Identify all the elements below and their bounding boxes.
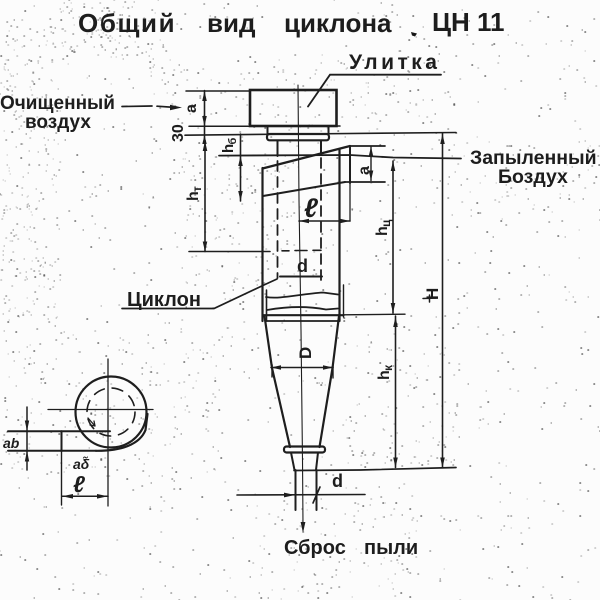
- svg-text:т: т: [190, 186, 204, 192]
- svg-text:a: a: [183, 104, 200, 113]
- svg-text:d: d: [297, 256, 308, 276]
- svg-text:Общий: Общий: [78, 8, 176, 38]
- svg-text:ℓ: ℓ: [73, 471, 85, 497]
- svg-text:Улитка: Улитка: [349, 51, 440, 74]
- svg-text:б: б: [227, 138, 239, 145]
- svg-text:вид: вид: [207, 8, 256, 38]
- svg-text:воздух: воздух: [25, 112, 91, 133]
- svg-text:аb: аb: [3, 435, 20, 451]
- svg-text:d: d: [332, 471, 343, 491]
- svg-text:Боздух: Боздух: [498, 166, 568, 188]
- svg-text:Очищенный: Очищенный: [0, 93, 115, 114]
- svg-text:ЦН 11: ЦН 11: [432, 7, 504, 37]
- svg-text:к: к: [381, 364, 395, 371]
- svg-text:H: H: [423, 288, 442, 300]
- svg-text:a: a: [356, 166, 373, 175]
- svg-text:Сброс: Сброс: [284, 537, 346, 559]
- svg-text:аδ̃: аδ̃: [73, 455, 90, 472]
- svg-text:30: 30: [170, 124, 187, 142]
- svg-text:пыли: пыли: [364, 537, 418, 559]
- svg-text:ℓ: ℓ: [304, 193, 319, 223]
- svg-text:ц: ц: [379, 219, 393, 227]
- svg-text:циклона: циклона: [284, 8, 392, 38]
- svg-text:D: D: [296, 347, 315, 359]
